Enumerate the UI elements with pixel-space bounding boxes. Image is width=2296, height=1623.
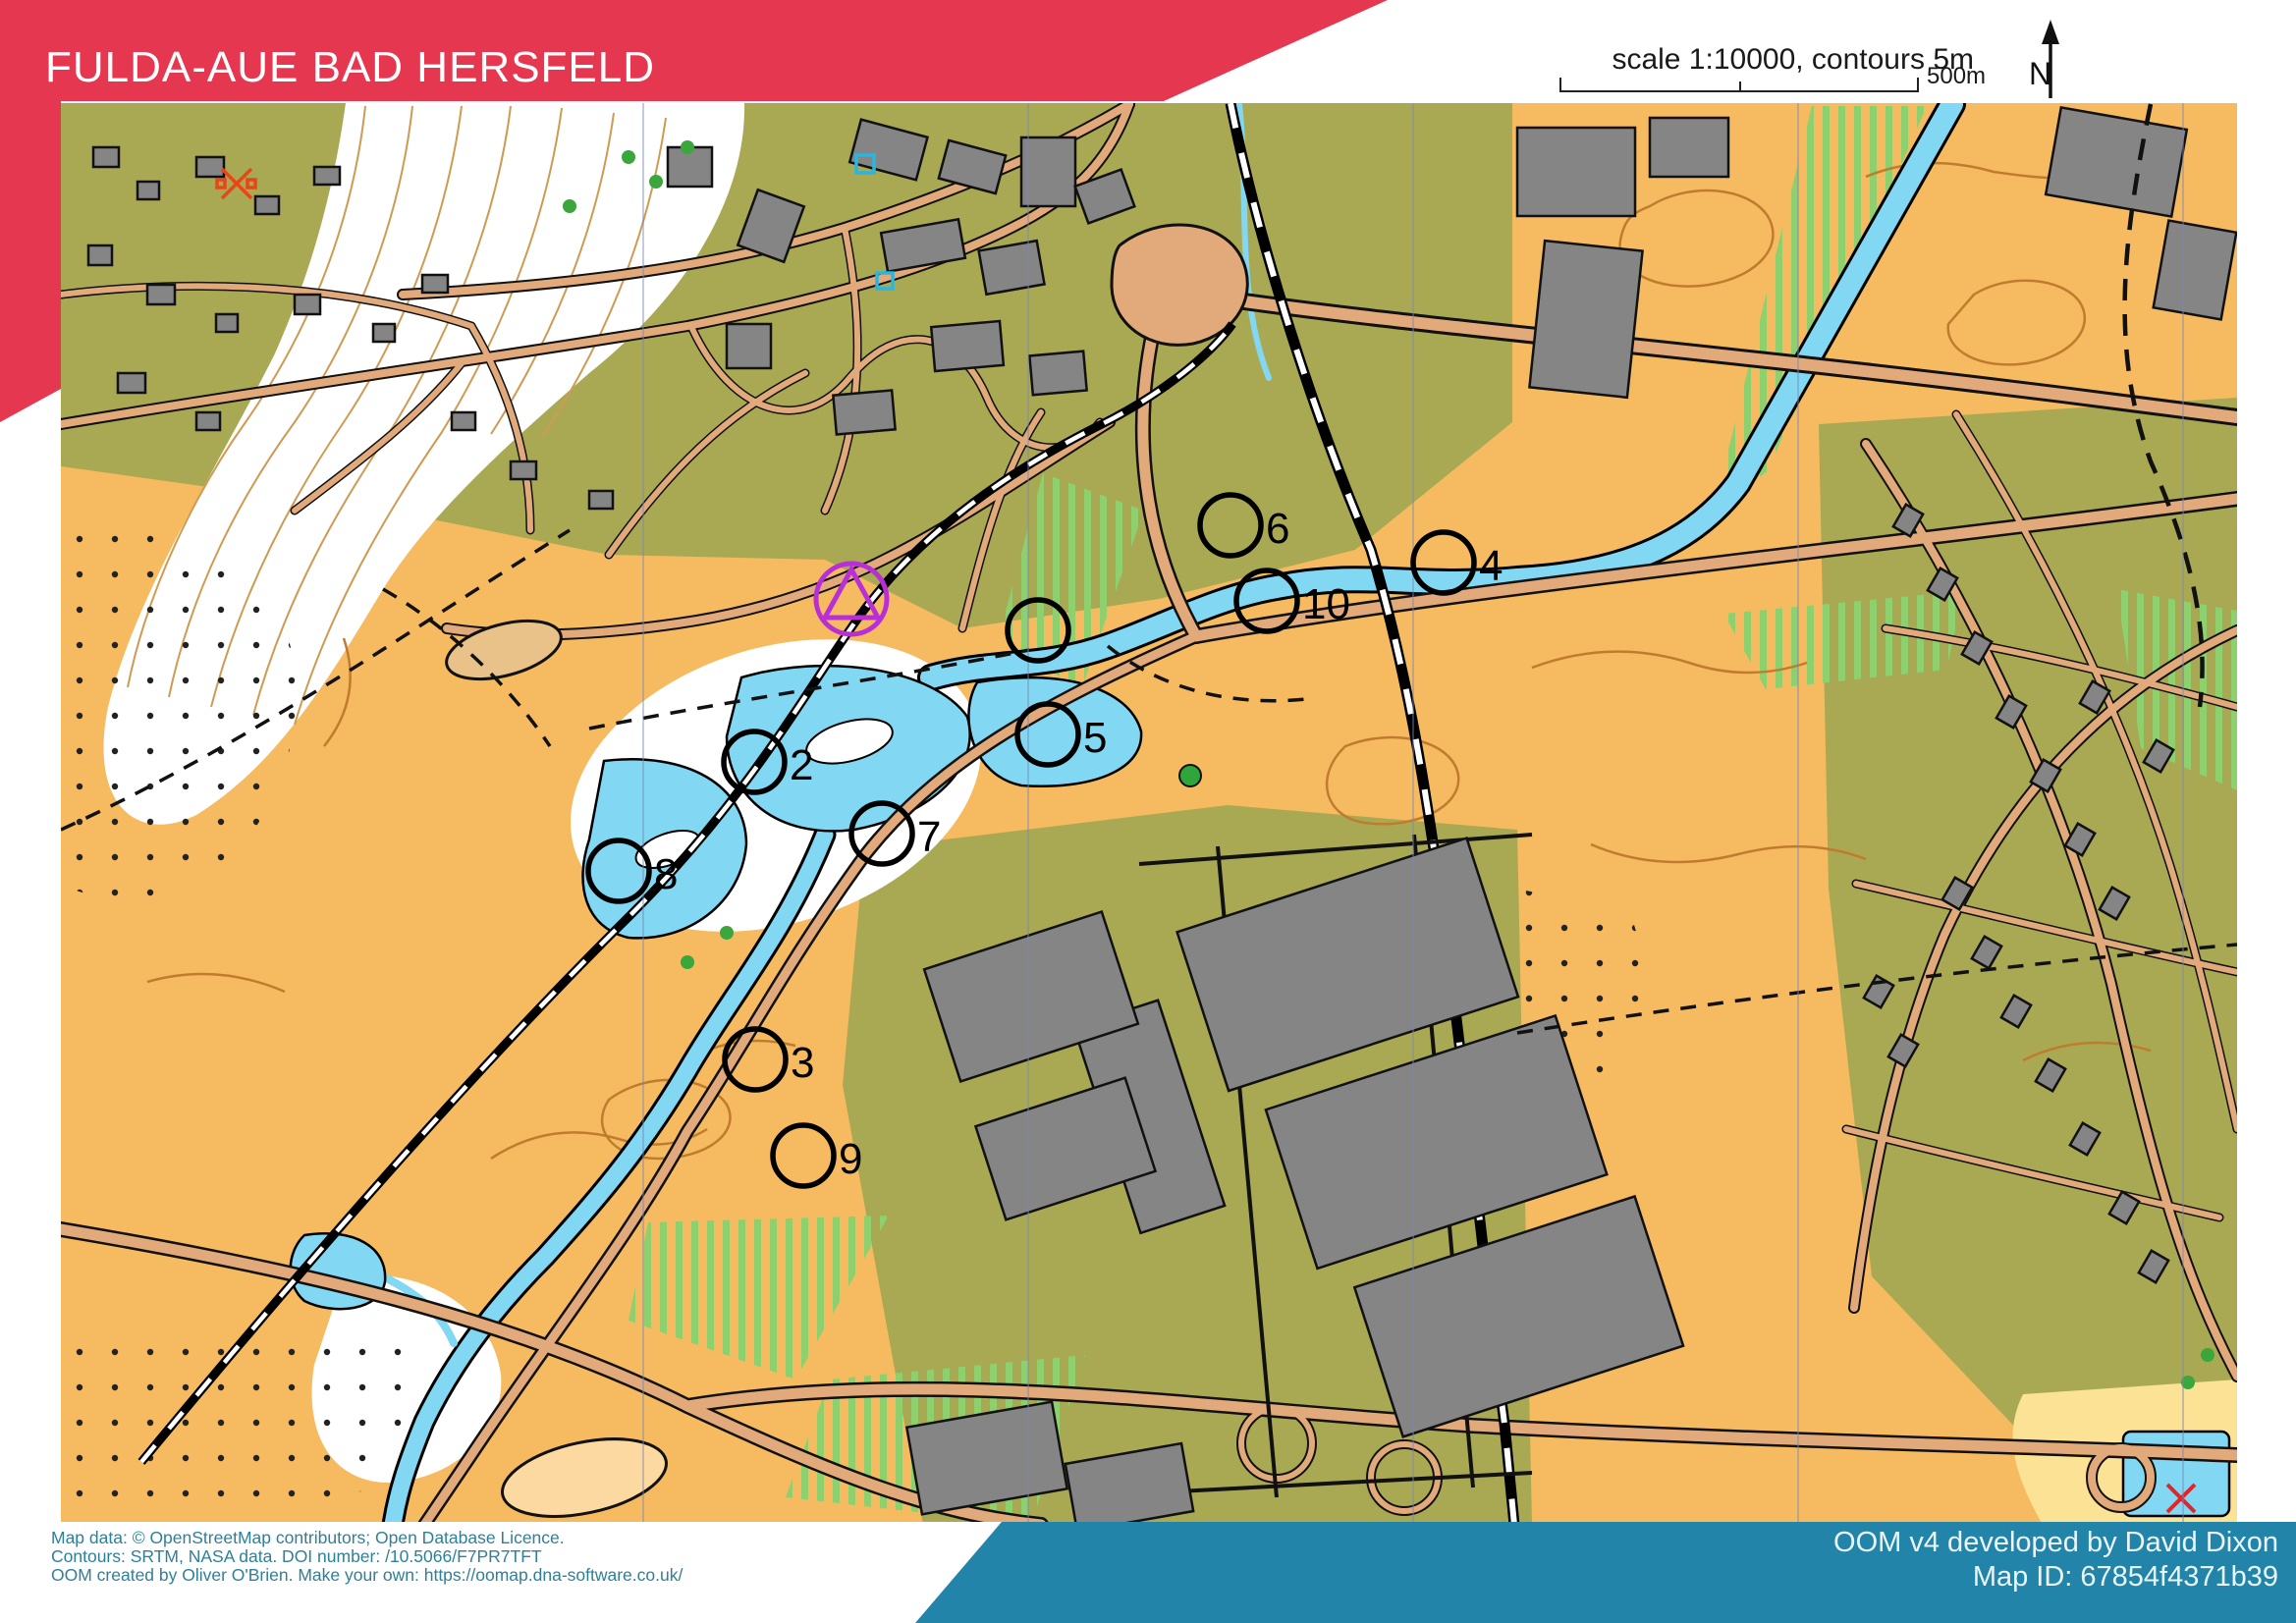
- scale-bar: [1559, 78, 1919, 92]
- control-number: 9: [839, 1135, 862, 1183]
- page-title: FULDA-AUE BAD HERSFELD: [45, 43, 655, 92]
- control-number: 4: [1479, 542, 1503, 590]
- control-number: 2: [790, 741, 813, 789]
- scale-bar-label: 500m: [1927, 63, 1986, 90]
- attribution-line-mapid: Map ID: 67854f4371b39: [1833, 1560, 2278, 1595]
- north-arrow-icon: N: [2019, 20, 2066, 102]
- credit-line-osm: Map data: © OpenStreetMap contributors; …: [51, 1529, 683, 1547]
- control-number: 7: [917, 813, 941, 861]
- north-label: N: [2029, 56, 2051, 91]
- control-number: 6: [1266, 505, 1289, 553]
- control-number: 8: [654, 850, 678, 898]
- control-number: 5: [1083, 714, 1107, 762]
- roundabout-green: [1179, 765, 1201, 786]
- attribution-line-developer: OOM v4 developed by David Dixon: [1833, 1526, 2278, 1560]
- scale-block: scale 1:10000, contours 5m: [1542, 43, 1974, 77]
- control-number: 10: [1302, 580, 1350, 628]
- control-number: 3: [791, 1039, 814, 1087]
- map-credits: Map data: © OpenStreetMap contributors; …: [51, 1529, 683, 1584]
- map-canvas: 2345678910: [0, 0, 2296, 1623]
- scale-text: scale 1:10000, contours 5m: [1612, 43, 1974, 76]
- page: 2345678910 FULDA-AUE BAD HERSFELD scale …: [0, 0, 2296, 1623]
- developer-attribution: OOM v4 developed by David Dixon Map ID: …: [1833, 1526, 2278, 1595]
- urban-area-east: [1819, 398, 2237, 1435]
- credit-line-oom: OOM created by Oliver O'Brien. Make your…: [51, 1566, 683, 1585]
- credit-line-contours: Contours: SRTM, NASA data. DOI number: /…: [51, 1547, 683, 1566]
